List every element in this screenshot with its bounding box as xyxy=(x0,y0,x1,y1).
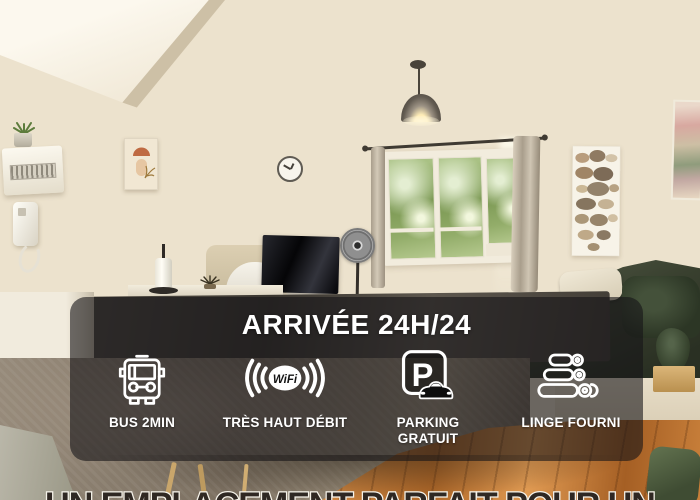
window-pane xyxy=(438,156,485,258)
features-row: BUS 2MIN WiFi xyxy=(70,345,643,446)
triple-window xyxy=(381,148,532,266)
curtain-right xyxy=(511,136,541,292)
feature-label: LINGE FOURNI xyxy=(521,415,620,431)
spiky-table-plant xyxy=(197,274,223,290)
fuse-box xyxy=(2,145,64,195)
feature-bus: BUS 2MIN xyxy=(71,345,214,446)
wall-clock xyxy=(277,156,303,182)
wifi-icon: WiFi xyxy=(242,345,328,411)
intercom-handset xyxy=(13,202,38,246)
plant-pot xyxy=(14,133,32,147)
svg-text:WiFi: WiFi xyxy=(273,374,298,386)
curtain-left xyxy=(371,147,385,288)
abstract-wall-art xyxy=(124,138,158,190)
pendant-lamp-glow xyxy=(403,116,439,126)
feature-linen: LINGE FOURNI xyxy=(500,345,643,446)
wood-stool xyxy=(653,366,695,392)
feature-label: TRÈS HAUT DÉBIT xyxy=(223,415,348,431)
pebble-art-poster xyxy=(572,146,621,256)
feature-label: PARKING GRATUIT xyxy=(380,415,476,446)
feature-label: BUS 2MIN xyxy=(109,415,175,431)
paper-towel-base xyxy=(149,287,178,294)
listing-promo-image: ARRIVÉE 24H/24 xyxy=(0,0,700,500)
framed-art-right xyxy=(671,100,700,201)
pendant-lamp-canopy xyxy=(410,60,426,69)
parking-icon: P xyxy=(399,345,457,411)
info-overlay-panel: ARRIVÉE 24H/24 xyxy=(70,297,643,461)
ceiling-soffit xyxy=(0,0,360,125)
arrival-title: ARRIVÉE 24H/24 xyxy=(242,309,472,341)
intercom-button xyxy=(18,208,26,216)
bus-icon xyxy=(113,345,171,411)
fuse-box-switches xyxy=(10,163,57,180)
caption-headline: UN EMPLACEMENT PARFAIT POUR UN xyxy=(0,486,700,500)
window-pane xyxy=(388,158,437,260)
folded-towels-icon xyxy=(536,345,606,411)
feature-parking: P PARKING GRATUIT xyxy=(357,345,500,446)
feature-wifi: WiFi TRÈS HAUT DÉBIT xyxy=(214,345,357,446)
standing-fan xyxy=(340,228,375,263)
paper-towel-roll xyxy=(155,258,172,290)
